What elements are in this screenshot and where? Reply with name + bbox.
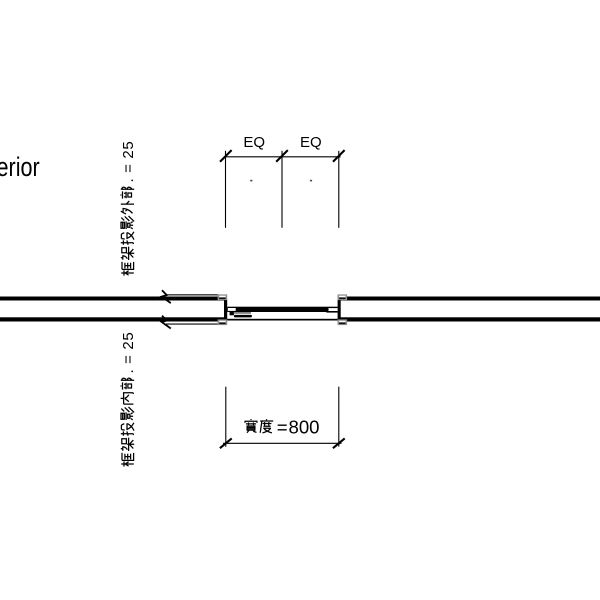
svg-text:800: 800	[289, 417, 320, 438]
svg-text:erior: erior	[0, 153, 40, 183]
svg-text:EQ: EQ	[300, 134, 322, 151]
svg-text:. = 25: . = 25	[120, 332, 137, 374]
svg-text:. = 25: . = 25	[120, 141, 137, 183]
svg-text:=: =	[277, 417, 288, 438]
svg-text:EQ: EQ	[243, 134, 265, 151]
